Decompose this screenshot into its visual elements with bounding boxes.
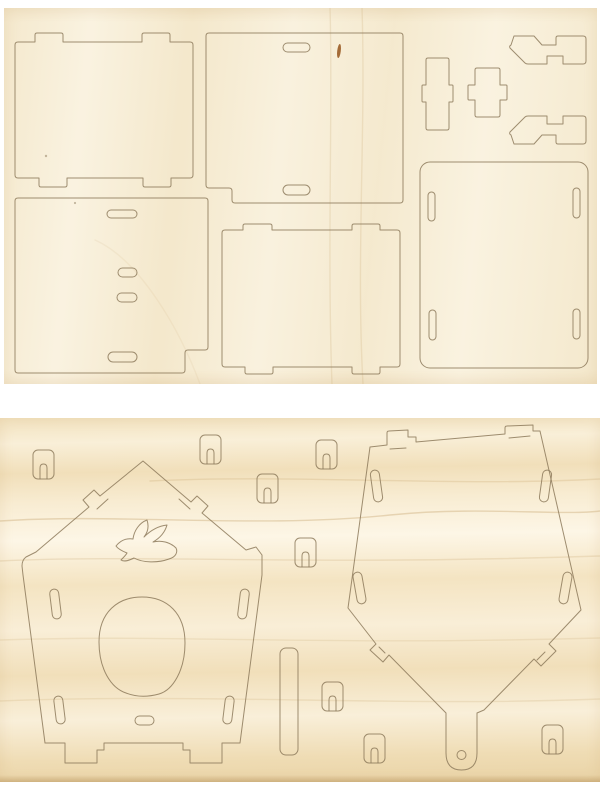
lock-clip xyxy=(364,734,385,763)
slot xyxy=(370,470,383,503)
slot xyxy=(222,696,234,725)
lock-clip xyxy=(322,682,343,711)
hook-slit xyxy=(379,647,385,653)
tab-slit xyxy=(509,436,530,438)
dove-cutout xyxy=(116,520,177,562)
lock-clip xyxy=(33,450,54,479)
slot xyxy=(117,293,137,302)
slot xyxy=(352,571,366,604)
hanger-hole xyxy=(457,751,466,760)
piece-cross-connector-b xyxy=(468,68,507,117)
tab-slit xyxy=(97,499,108,509)
piece-perch-strip xyxy=(280,648,298,755)
hook-slit xyxy=(537,652,545,660)
slot xyxy=(429,310,436,340)
wood-speck xyxy=(74,202,76,204)
wood-grain-streaks xyxy=(95,8,363,384)
piece-cross-connector-a xyxy=(422,58,453,130)
lock-clip xyxy=(295,538,316,567)
slot xyxy=(283,43,310,52)
piece-front-panel xyxy=(22,461,262,763)
white-divider xyxy=(0,384,600,418)
piece-wall-panel-tabs-b xyxy=(222,224,400,374)
slot xyxy=(135,716,154,725)
piece-back-panel xyxy=(348,425,581,770)
wood-knot xyxy=(336,44,341,58)
slot xyxy=(558,571,572,604)
slot xyxy=(107,210,137,218)
piece-ridge-bracket-a xyxy=(510,36,586,64)
lock-clip xyxy=(542,725,563,754)
photo-collage xyxy=(0,0,600,800)
slot xyxy=(49,589,62,620)
slot xyxy=(428,192,435,221)
slot xyxy=(573,188,580,218)
piece-wall-panel-slotted xyxy=(15,198,208,373)
entry-hole xyxy=(99,597,185,696)
plywood-sheet-bottom xyxy=(0,418,600,782)
piece-ridge-bracket-b xyxy=(510,116,586,144)
top-sheet-cut-lines xyxy=(4,8,597,384)
lock-clip xyxy=(316,440,337,469)
piece-wall-panel-tabs-a xyxy=(15,33,193,187)
wood-speck xyxy=(45,155,47,157)
slot xyxy=(283,185,310,195)
slot xyxy=(573,309,580,339)
piece-base-panel xyxy=(420,162,588,368)
tab-slit xyxy=(390,448,406,449)
wood-grain-streaks xyxy=(0,479,600,702)
plywood-sheet-top xyxy=(4,8,597,384)
lock-clip xyxy=(200,435,221,464)
slot xyxy=(108,352,137,362)
bottom-sheet-cut-lines xyxy=(0,418,600,782)
tab-slit xyxy=(179,499,190,509)
piece-roof-panel-slotted xyxy=(206,33,403,203)
slot xyxy=(237,589,250,620)
